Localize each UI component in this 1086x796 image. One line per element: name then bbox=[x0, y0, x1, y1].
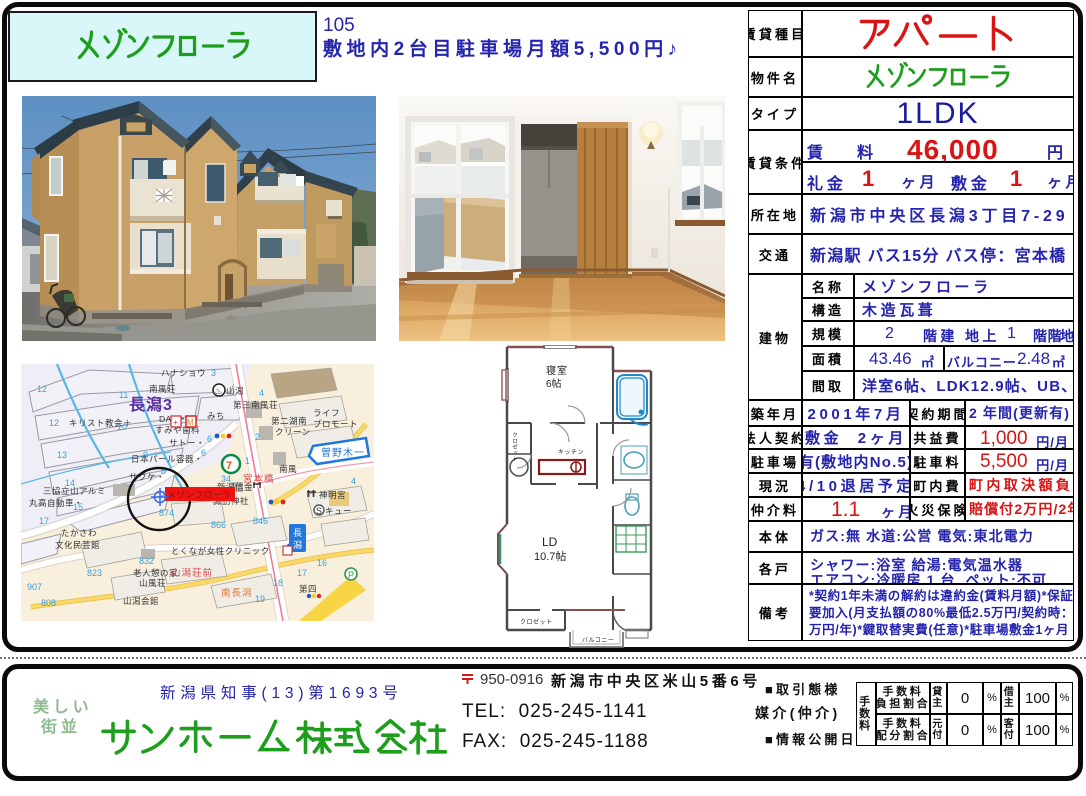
svg-text:6: 6 bbox=[207, 434, 212, 444]
svg-text:M: M bbox=[187, 418, 194, 427]
svg-text:808: 808 bbox=[41, 598, 56, 608]
svg-text:みち: みち bbox=[207, 411, 225, 421]
svg-text:6: 6 bbox=[201, 448, 206, 458]
svg-text:プロモート: プロモート bbox=[313, 419, 358, 429]
svg-text:874: 874 bbox=[159, 508, 174, 518]
svg-text:文化民芸館: 文化民芸館 bbox=[55, 540, 100, 550]
svg-text:LD: LD bbox=[542, 535, 558, 549]
svg-text:曽野木一: 曽野木一 bbox=[321, 446, 365, 459]
svg-text:9: 9 bbox=[143, 450, 148, 460]
svg-text:2: 2 bbox=[255, 432, 260, 442]
svg-text:南長潟: 南長潟 bbox=[221, 587, 253, 599]
svg-text:10: 10 bbox=[117, 422, 127, 432]
svg-text:バルコニー: バルコニー bbox=[582, 637, 614, 644]
svg-text:34: 34 bbox=[221, 474, 231, 484]
svg-text:16: 16 bbox=[317, 558, 327, 568]
svg-text:第四: 第四 bbox=[299, 584, 317, 594]
svg-text:10.7帖: 10.7帖 bbox=[534, 550, 566, 563]
svg-text:山潟荘前: 山潟荘前 bbox=[171, 567, 213, 579]
svg-text:11: 11 bbox=[119, 390, 128, 400]
svg-text:第二湖南: 第二湖南 bbox=[271, 416, 307, 426]
svg-text:とくなが女性クリニック: とくなが女性クリニック bbox=[171, 546, 270, 556]
svg-text:潟: 潟 bbox=[293, 539, 302, 550]
svg-text:846: 846 bbox=[253, 516, 268, 526]
svg-text:17: 17 bbox=[39, 516, 49, 526]
svg-text:ハナショウ: ハナショウ bbox=[161, 368, 206, 378]
svg-text:クロゼット: クロゼット bbox=[520, 618, 553, 626]
svg-text:第三南風荘: 第三南風荘 bbox=[233, 400, 278, 410]
svg-text:サトー・: サトー・ bbox=[169, 438, 205, 448]
svg-text:4: 4 bbox=[259, 388, 264, 398]
svg-text:+: + bbox=[173, 418, 178, 427]
svg-text:832: 832 bbox=[139, 556, 154, 566]
svg-text:♨: ♨ bbox=[215, 386, 223, 396]
svg-text:メゾンフローラ: メゾンフローラ bbox=[167, 490, 231, 500]
svg-text:キュー: キュー bbox=[325, 506, 352, 516]
svg-text:寝室: 寝室 bbox=[546, 364, 568, 377]
svg-text:19: 19 bbox=[255, 594, 265, 604]
svg-text:866: 866 bbox=[211, 520, 226, 530]
svg-text:南風: 南風 bbox=[279, 464, 297, 474]
svg-text:3: 3 bbox=[211, 368, 216, 378]
svg-text:15: 15 bbox=[73, 502, 83, 512]
svg-text:南風莊: 南風莊 bbox=[149, 384, 176, 394]
svg-text:4: 4 bbox=[351, 476, 356, 486]
svg-text:神明宮: 神明宮 bbox=[319, 490, 346, 500]
svg-text:長潟3: 長潟3 bbox=[129, 395, 173, 414]
svg-text:長: 長 bbox=[293, 528, 302, 538]
svg-text:12: 12 bbox=[49, 418, 59, 428]
svg-text:14: 14 bbox=[65, 478, 75, 488]
svg-text:宮本橋: 宮本橋 bbox=[243, 473, 275, 485]
svg-text:山潟: 山潟 bbox=[226, 386, 244, 396]
svg-text:1: 1 bbox=[245, 456, 250, 466]
svg-text:山潟会館: 山潟会館 bbox=[123, 596, 159, 606]
svg-text:907: 907 bbox=[27, 582, 42, 592]
svg-text:18: 18 bbox=[273, 578, 283, 588]
svg-text:12: 12 bbox=[37, 384, 47, 394]
svg-text:クロゼット: クロゼット bbox=[511, 432, 518, 462]
svg-text:17: 17 bbox=[297, 568, 307, 578]
svg-text:13: 13 bbox=[57, 450, 67, 460]
svg-text:S: S bbox=[316, 506, 322, 516]
svg-text:キッチン: キッチン bbox=[558, 449, 584, 456]
svg-text:7: 7 bbox=[226, 460, 232, 472]
svg-text:たかさわ: たかさわ bbox=[61, 528, 97, 538]
svg-text:ライフ: ライフ bbox=[313, 408, 340, 418]
svg-text:クリーン: クリーン bbox=[275, 427, 311, 437]
svg-text:山風荘: 山風荘 bbox=[139, 578, 166, 588]
svg-text:日本パール容器・: 日本パール容器・ bbox=[131, 454, 203, 464]
svg-text:6帖: 6帖 bbox=[546, 377, 562, 390]
svg-text:P: P bbox=[348, 570, 354, 580]
svg-text:823: 823 bbox=[87, 568, 102, 578]
